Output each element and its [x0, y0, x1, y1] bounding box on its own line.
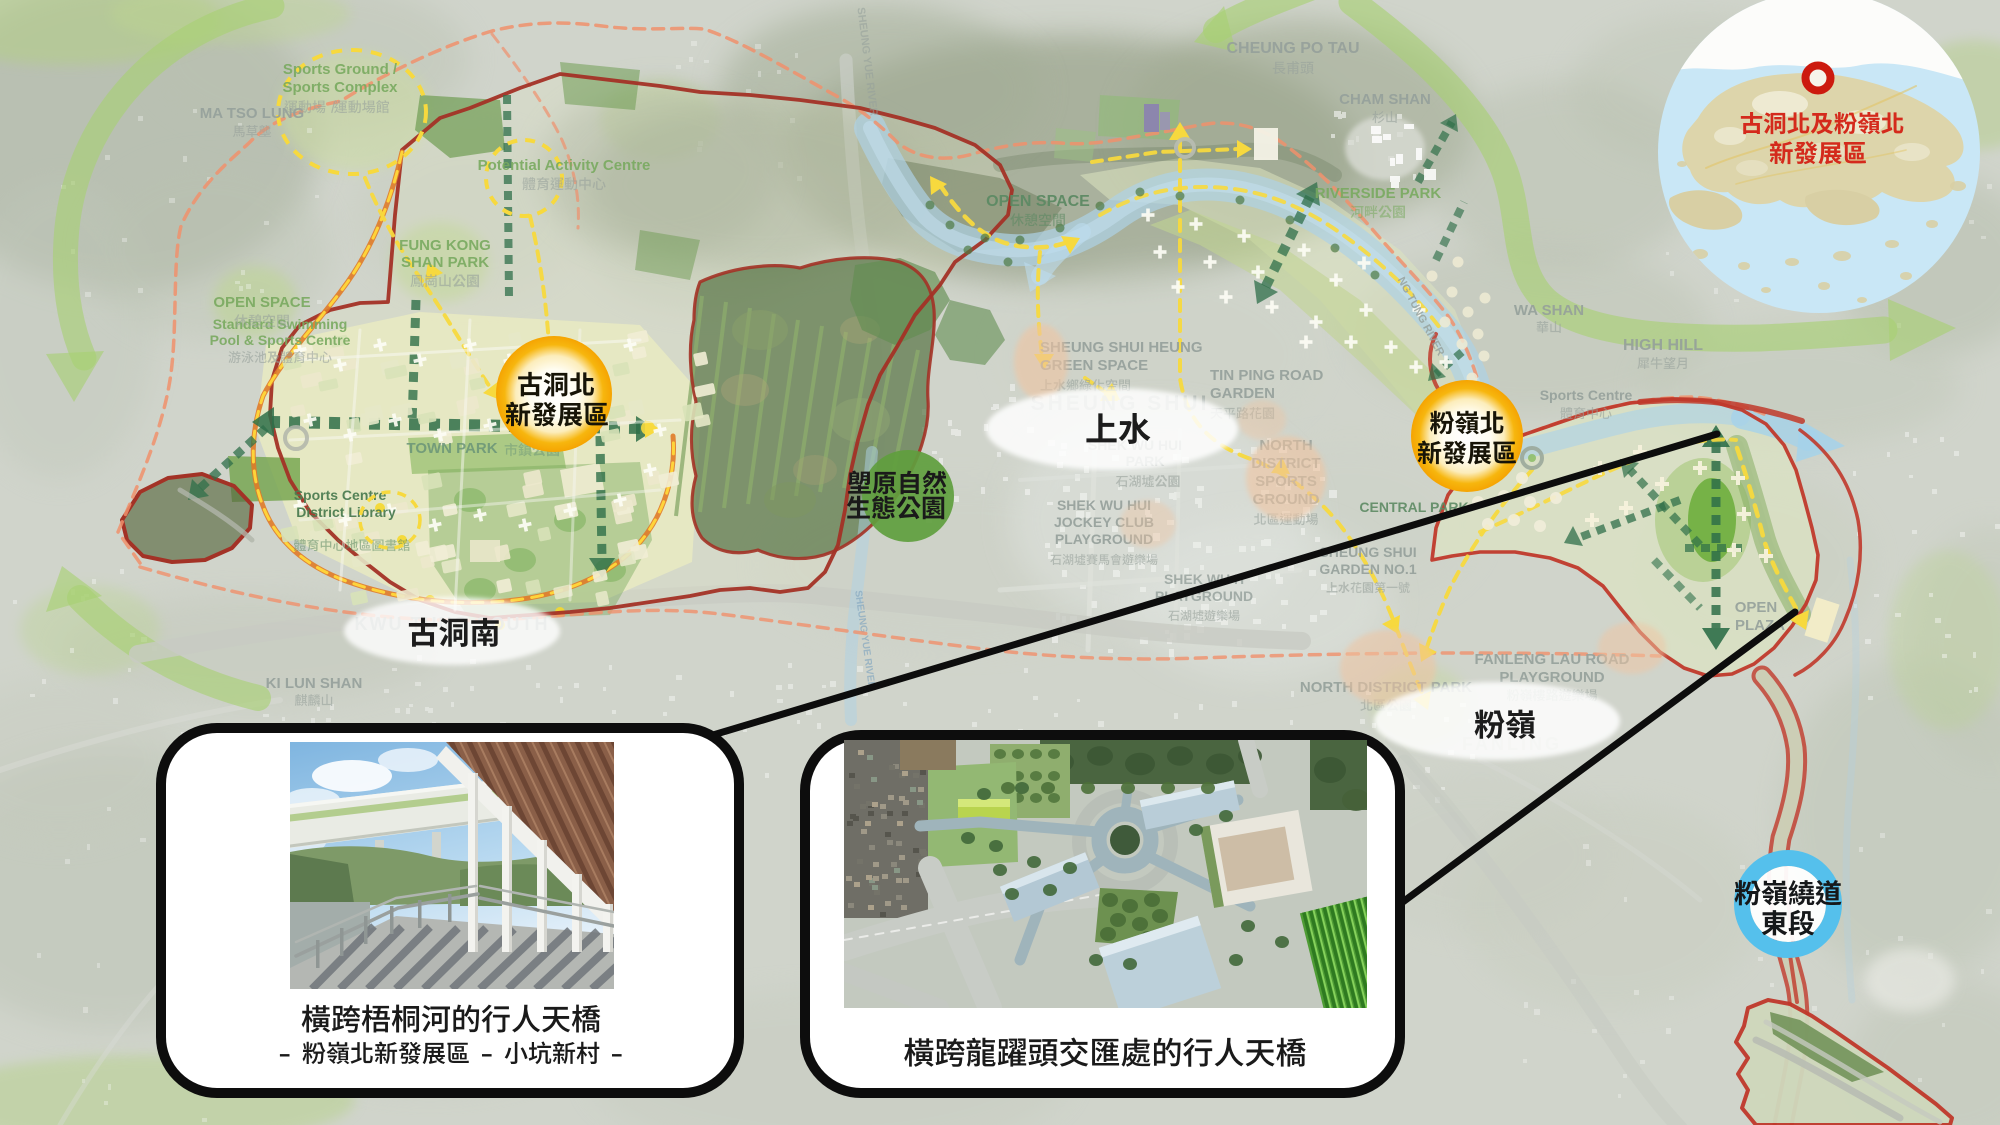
- svg-text:HIGH HILL: HIGH HILL: [1623, 337, 1703, 354]
- svg-text:RIVERSIDE PARK: RIVERSIDE PARK: [1315, 185, 1442, 202]
- svg-text:WA SHAN: WA SHAN: [1514, 302, 1584, 319]
- svg-text:SHAN PARK: SHAN PARK: [401, 254, 489, 271]
- svg-text:Potential Activity Centre: Potential Activity Centre: [478, 157, 651, 174]
- svg-text:KI LUN SHAN: KI LUN SHAN: [266, 675, 363, 692]
- svg-text:OPEN SPACE: OPEN SPACE: [213, 294, 310, 311]
- svg-text:OPEN SPACE: OPEN SPACE: [986, 193, 1090, 210]
- svg-text:CHAM SHAN: CHAM SHAN: [1339, 91, 1431, 108]
- svg-text:Sports Complex: Sports Complex: [282, 79, 398, 96]
- svg-text:District Library: District Library: [296, 504, 396, 520]
- svg-text:MA TSO LUNG: MA TSO LUNG: [200, 105, 304, 122]
- svg-text:GARDEN: GARDEN: [1210, 385, 1275, 402]
- svg-text:Sports Centre: Sports Centre: [1540, 387, 1633, 403]
- svg-text:FUNG KONG: FUNG KONG: [399, 237, 491, 254]
- svg-text:TOWN PARK: TOWN PARK: [406, 440, 497, 457]
- svg-text:GARDEN NO.1: GARDEN NO.1: [1319, 561, 1416, 577]
- svg-text:Standard Swimming: Standard Swimming: [213, 316, 348, 332]
- svg-text:Pool & Sports Centre: Pool & Sports Centre: [210, 332, 351, 348]
- svg-text:CHEUNG PO TAU: CHEUNG PO TAU: [1226, 40, 1359, 57]
- svg-text:Sports Centre: Sports Centre: [294, 487, 387, 503]
- svg-text:OPEN: OPEN: [1735, 599, 1778, 616]
- svg-text:TIN PING ROAD: TIN PING ROAD: [1210, 367, 1324, 384]
- svg-text:Sports Ground /: Sports Ground /: [283, 61, 398, 78]
